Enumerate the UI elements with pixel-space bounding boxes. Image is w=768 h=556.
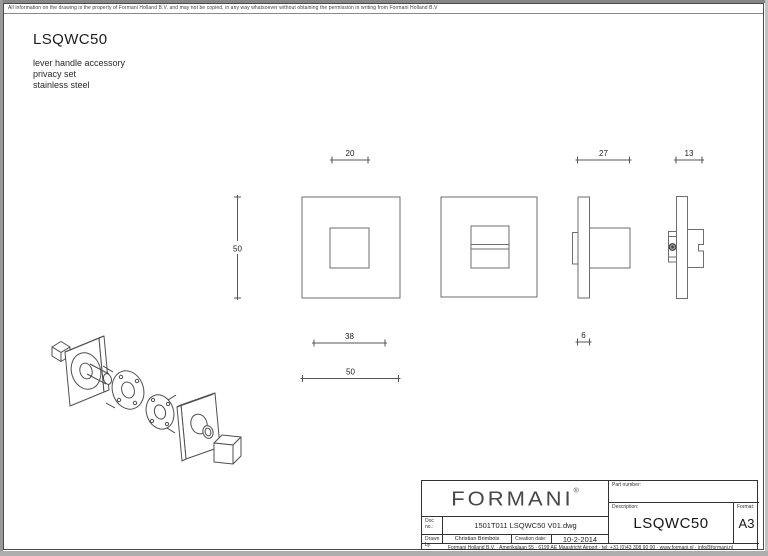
drawing-sheet: All information on the drawing is the pr…	[0, 0, 768, 556]
registered-mark: ®	[574, 487, 579, 493]
formani-logo: FORMANI®	[422, 481, 608, 516]
format-cell: Format: A3	[733, 503, 759, 543]
description-label: Description:	[609, 503, 733, 510]
side-view-release	[669, 197, 704, 299]
format-label: Format:	[734, 503, 759, 510]
dimension-50-height-label: 50	[233, 245, 242, 254]
dimension-20-label: 20	[346, 149, 355, 158]
dimension-50-width-label: 50	[346, 368, 355, 377]
part-number-label: Part number:	[609, 481, 759, 488]
dimension-6-label: 6	[581, 331, 586, 340]
drawn-by-value: Christian Brimbois	[443, 535, 511, 543]
dimension-38-label: 38	[345, 332, 354, 341]
part-number-cell: Part number:	[608, 481, 759, 503]
logo-text: FORMANI	[451, 487, 573, 510]
dimension-13-label: 13	[685, 149, 694, 158]
side-view-knob	[573, 197, 631, 298]
description-cell: Description: LSQWC50	[608, 503, 733, 543]
front-view-rose	[302, 197, 400, 298]
drawn-by-label: Drawn by:	[422, 535, 443, 543]
doc-no-label: Doc no.:	[422, 517, 443, 534]
exploded-view	[52, 336, 241, 464]
title-block: FORMANI® Doc no.: 1501T011 LSQWC50 V01.d…	[421, 480, 758, 550]
drawn-by-row: Drawn by: Christian Brimbois Creation da…	[422, 534, 608, 543]
front-view-slot	[441, 197, 537, 297]
creation-date-value: 10-2-2014	[551, 535, 608, 543]
doc-no-value: 1501T011 LSQWC50 V01.dwg	[443, 517, 608, 534]
doc-no-row: Doc no.: 1501T011 LSQWC50 V01.dwg	[422, 516, 608, 534]
company-address-footer: Formani Holland B.V. · Amerikalaan 55 · …	[422, 543, 759, 551]
description-value: LSQWC50	[609, 515, 733, 532]
format-value: A3	[734, 516, 759, 531]
technical-drawing: 20 50 38 50	[0, 0, 768, 556]
creation-date-label: Creation date:	[511, 535, 551, 543]
dimension-27-label: 27	[599, 149, 608, 158]
